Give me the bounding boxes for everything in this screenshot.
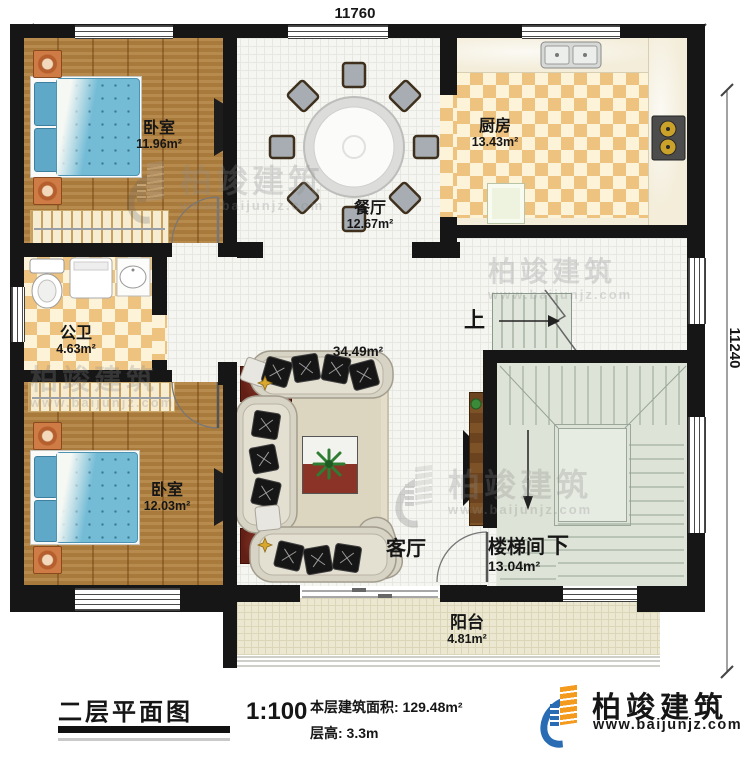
label-bathroom: 公卫 4.63m² <box>36 325 116 356</box>
kitchen-sink <box>541 42 601 68</box>
dimension-top-value: 11760 <box>335 5 376 22</box>
plan-scale: 1:100 <box>246 698 307 726</box>
dining-chair <box>414 136 438 158</box>
balcony-rail <box>237 657 660 666</box>
stair-up-arrow <box>499 315 560 327</box>
label-living-area: 34.49m² <box>318 345 398 360</box>
dimension-right <box>721 84 733 678</box>
door-bedroom-bottom <box>172 382 218 428</box>
wall-bedroom-bottom-corner <box>218 362 237 385</box>
wall-bedroom-bottom-right <box>223 385 237 586</box>
wall-stub <box>218 243 237 257</box>
window-right-lower <box>688 417 706 533</box>
wall-stair-west <box>483 363 497 528</box>
plan-title: 二层平面图 <box>58 692 193 727</box>
floorplan-page: { "plan": { "dimensions": { "top": "1176… <box>0 0 750 749</box>
dimension-right-value: 11240 <box>726 328 743 369</box>
window-stair-south <box>563 588 637 602</box>
stair-down-arrow <box>523 430 533 510</box>
wall-bathroom-right-top <box>152 257 167 315</box>
cabinet-plant <box>471 399 481 409</box>
brand-url: www.baijunjz.com <box>593 717 742 733</box>
window-bedroom-bottom <box>75 588 180 611</box>
wall-stair-south <box>487 586 563 602</box>
toilet <box>30 259 64 308</box>
wall-bedroom-top-south <box>10 243 172 257</box>
window-dining <box>288 25 388 39</box>
door-bedroom-top <box>172 197 218 243</box>
wall-bathroom-south <box>10 370 172 382</box>
tv-living <box>463 430 469 506</box>
wall-balcony-left <box>223 602 237 668</box>
wall-stair-north <box>483 350 687 363</box>
dining-chair <box>287 182 320 215</box>
label-stairwell: 楼梯间下 13.04m² <box>488 534 569 574</box>
floor-height-text: 层高: 3.3m <box>310 723 378 743</box>
dining-chair <box>270 136 294 158</box>
stove <box>652 116 685 160</box>
door-stairwell <box>437 532 487 582</box>
window-bedroom-top <box>75 25 173 39</box>
wall-kitchen-south <box>457 225 687 238</box>
wall-stair-corner <box>637 586 705 612</box>
wall-south-corridor <box>223 585 300 602</box>
wall-dining-stub-left <box>237 242 263 258</box>
label-dining: 餐厅 12.67m² <box>330 200 410 231</box>
logo-building-icon <box>560 685 577 725</box>
label-balcony: 阳台 4.81m² <box>427 614 507 646</box>
label-living: 客厅 <box>386 532 426 561</box>
sliding-door <box>302 588 438 598</box>
washing-machine <box>70 258 112 298</box>
dining-chair <box>389 80 422 113</box>
stair-up-label: 上 <box>464 304 485 334</box>
window-bathroom <box>11 287 25 342</box>
label-bedroom-top: 卧室 11.96m² <box>119 120 199 151</box>
title-underline-2 <box>58 738 230 741</box>
label-kitchen: 厨房 13.43m² <box>455 118 535 149</box>
title-underline <box>58 726 230 733</box>
wall-kitchen-stub-top <box>440 38 457 95</box>
window-kitchen <box>522 25 620 39</box>
label-bedroom-bottom: 卧室 12.03m² <box>127 482 207 513</box>
floor-area-text: 本层建筑面积: 129.48m² <box>310 697 462 717</box>
logo-building-small-icon <box>550 704 559 726</box>
window-right-upper <box>688 258 706 324</box>
bathroom-sink <box>117 258 150 296</box>
dining-chair <box>287 80 320 113</box>
plant <box>314 450 344 478</box>
wall-south-mid <box>440 585 487 602</box>
wall-bedroom-dining <box>223 38 237 257</box>
brand-logo-icon <box>543 684 585 744</box>
wall-kitchen-stub-bottom <box>440 217 457 258</box>
stair-down-label: 下 <box>547 533 569 558</box>
dining-chair <box>343 63 365 87</box>
